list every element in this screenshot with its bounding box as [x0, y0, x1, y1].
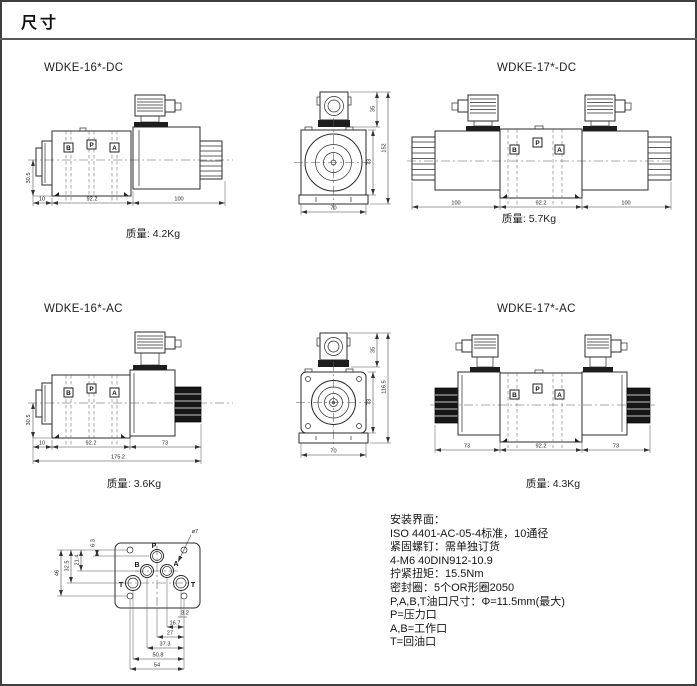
valve-body-group: B P A: [36, 95, 222, 201]
port-a-label: A: [173, 561, 178, 568]
left-cable-gland: [462, 340, 472, 352]
right-cable-gland: [611, 340, 621, 352]
left-nut: [435, 388, 458, 423]
dim-body-label: 92.2: [536, 443, 547, 449]
note-line: 紧固螺钉：需单独订货: [390, 541, 685, 555]
port-b-label: B: [134, 562, 139, 569]
wdke-17-dc-label: WDKE-17*-DC: [497, 62, 576, 74]
title-divider: [0, 38, 697, 40]
dimensions: 35 73 152 70: [301, 92, 391, 215]
dim-solenoid-label: 100: [174, 196, 183, 202]
port-b-label: B: [512, 392, 517, 399]
dimensions: 30.5 10 92.2 100: [26, 160, 225, 206]
port-a-label: A: [112, 390, 117, 397]
wdke-16-ac-label: WDKE-16*-AC: [44, 303, 123, 315]
end-nub: [36, 390, 42, 417]
wdke-17-ac-label: WDKE-17*-AC: [497, 303, 576, 315]
connector: [135, 95, 165, 116]
dim-v2-label: 21.4: [75, 555, 81, 566]
ac-front-view: 35 73 116.5 70: [288, 332, 400, 464]
note-line: A,B=工作口: [390, 623, 685, 637]
page-title: 尺寸: [21, 9, 59, 33]
note-line: 4-M6 40DIN912-10.9: [390, 555, 685, 569]
dim-v4-label: 46: [55, 570, 61, 576]
dim-left-label: 73: [464, 443, 470, 449]
cable-gland: [165, 337, 175, 349]
bolt-hole: [181, 593, 187, 599]
left-solenoid: [458, 372, 500, 435]
note-line: 拧紧扭矩：15.5Nm: [390, 568, 685, 582]
dim-body-label: 92.2: [87, 196, 98, 202]
dim-right-label: 100: [621, 200, 630, 206]
port-p-label: P: [89, 386, 94, 393]
dim-total-label: 152: [382, 143, 388, 152]
wdke-17-dc-side-view: B P A 100 92.2 100: [405, 85, 690, 215]
installation-notes: 安装界面： ISO 4401-AC-05-4标准，10通径 紧固螺钉：需单独订货…: [390, 514, 685, 650]
dim-width-label: 70: [330, 206, 336, 212]
dimensions: 35 73 116.5 70: [301, 333, 391, 458]
right-solenoid: [582, 131, 648, 190]
dim-body-label: 92.2: [86, 440, 97, 446]
port-a-label: A: [557, 392, 562, 399]
dim-v1-label: 6.3: [91, 539, 97, 547]
dim-h1-label: 3.2: [181, 611, 189, 617]
dim-height-label: 30.5: [26, 415, 32, 426]
dim-h2-label: 16.7: [170, 621, 181, 627]
datasheet-page: 尺寸 WDKE-16*-DC: [0, 0, 697, 686]
note-line: P,A,B,T油口尺寸：Φ=11.5mm(最大): [390, 596, 685, 610]
dim-left-label: 100: [451, 200, 460, 206]
wdke-16-ac-mass: 质量: 3.6Kg: [84, 476, 184, 491]
valve-body-group: B P A: [36, 332, 201, 445]
solenoid: [133, 127, 200, 189]
dim-h5-label: 50.8: [153, 653, 164, 659]
note-line: ISO 4401-AC-05-4标准，10通径: [390, 528, 685, 542]
wdke-16-dc-side-view: B P A 30.5 10 92.2 100: [28, 85, 240, 227]
dim-top-label: 35: [371, 347, 377, 353]
port-b-label: B: [512, 147, 517, 154]
left-cable-gland: [458, 100, 468, 112]
wdke-17-dc-mass: 质量: 5.7Kg: [479, 211, 579, 226]
dim-left-label: 10: [39, 196, 45, 202]
valve-body: [500, 373, 582, 442]
cable-gland: [165, 100, 175, 112]
note-line: 安装界面：: [390, 514, 685, 528]
mounting-interface-view: P B A T T ø7 46 32.5 21.4 6.3 3.2: [35, 510, 250, 680]
wdke-16-dc-label: WDKE-16*-DC: [44, 62, 123, 74]
dim-h6-label: 54: [154, 663, 160, 669]
manual-override-nut: [175, 387, 201, 422]
dim-v3-label: 32.5: [65, 561, 71, 572]
port-p-label: P: [89, 142, 94, 149]
end-nub: [36, 148, 42, 176]
dim-h4-label: 37.3: [160, 642, 171, 648]
dim-solenoid-label: 73: [162, 440, 168, 446]
left-solenoid: [435, 131, 500, 190]
port-b-label: B: [66, 145, 71, 152]
wdke-16-dc-mass: 质量: 4.2Kg: [103, 226, 203, 241]
dim-body-label: 92.2: [536, 200, 547, 206]
dim-h3-label: 27: [167, 631, 173, 637]
note-line: 密封圈：5个OR形圈2050: [390, 582, 685, 596]
right-solenoid: [582, 372, 627, 435]
wdke-17-ac-side-view: B P A 73 92.2 73: [430, 330, 660, 465]
dim-total-label: 175.2: [111, 454, 125, 460]
port-b-label: B: [66, 390, 71, 397]
port-t-right-label: T: [191, 582, 196, 589]
dimensions: 46 32.5 21.4 6.3 3.2 16.7 27 37.3 50.8: [55, 539, 189, 669]
dc-front-view: 35 73 152 70: [288, 88, 400, 220]
port-p-label: P: [535, 386, 540, 393]
dim-body-label: 73: [367, 159, 373, 165]
end-cap: [42, 383, 52, 424]
port-p-label: P: [152, 543, 157, 550]
wdke-17-ac-mass: 质量: 4.3Kg: [503, 476, 603, 491]
valve-body-group: B P A: [412, 95, 671, 205]
port-a-label: A: [557, 147, 562, 154]
dim-right-label: 73: [613, 443, 619, 449]
valve-front-group: [294, 92, 373, 210]
dim-total-label: 116.5: [382, 380, 388, 394]
port-a-label: A: [112, 145, 117, 152]
port-p-label: P: [535, 140, 540, 147]
end-cap: [42, 141, 52, 185]
dim-left-label: 10: [39, 440, 45, 446]
connector: [135, 332, 165, 353]
right-cable-gland: [615, 100, 625, 112]
dimensions: 73 92.2 73: [435, 425, 650, 453]
right-connector: [585, 335, 611, 357]
connector: [320, 333, 347, 360]
dimensions: 100 92.2 100: [412, 182, 671, 210]
dim-body-label: 73: [367, 399, 373, 405]
valve-front-group: [296, 333, 371, 448]
left-connector: [472, 335, 498, 357]
note-line: P=压力口: [390, 609, 685, 623]
wdke-16-ac-side-view: B P A 30.5 10 92.2 73 175.2: [28, 330, 240, 472]
bolt-hole-dia-label: ø7: [192, 529, 199, 535]
right-nut: [627, 388, 650, 423]
bolt-hole-leader: [178, 535, 191, 562]
dim-height-label: 30.5: [26, 173, 32, 184]
valve-body-group: B P A: [435, 335, 650, 448]
note-line: T=回油口: [390, 636, 685, 650]
dim-width-label: 70: [330, 449, 336, 455]
dim-top-label: 35: [371, 106, 377, 112]
